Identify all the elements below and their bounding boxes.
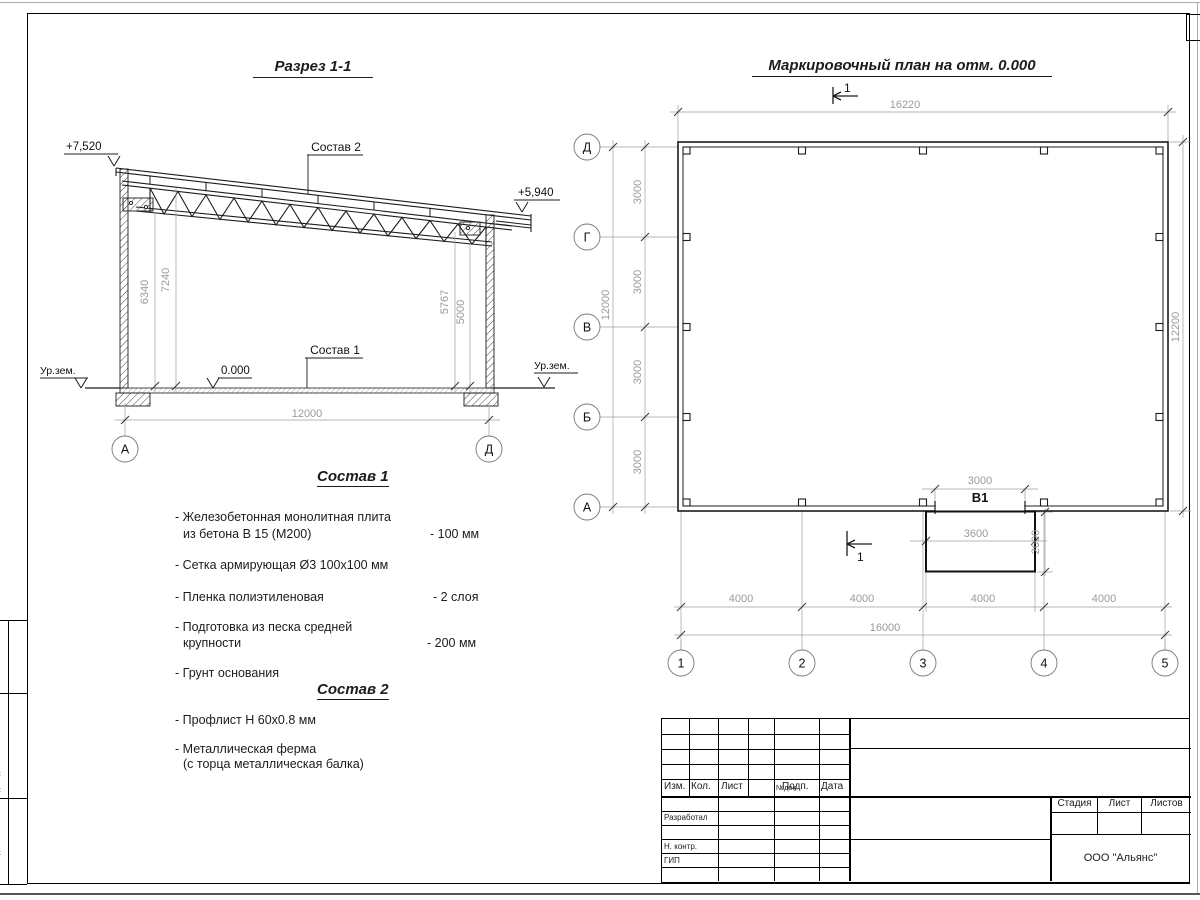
doc-number-box	[1186, 14, 1200, 41]
ground-left-text: Ур.зем.	[40, 365, 76, 377]
section-drawing-svg: 6340 7240 5767 5000 12000 А Д +7,520 +5,…	[20, 30, 620, 480]
tb-v818	[819, 719, 820, 881]
comp1-item4-line2: крупности	[183, 636, 241, 650]
side-stamp-divider	[8, 621, 9, 884]
level-zero-text: 0.000	[221, 365, 250, 377]
gate-label-b1: В1	[972, 490, 989, 505]
tb-role-developed: Разработал	[664, 813, 708, 822]
elev-left-text: +7,520	[66, 141, 102, 153]
tb-h748	[662, 749, 849, 750]
callout-floor-text: Состав 1	[310, 343, 360, 357]
dim-4000-2: 4000	[850, 593, 874, 605]
comp1-item5-line1: - Грунт основания	[175, 666, 279, 680]
comp2-heading: Состав 2	[317, 681, 389, 700]
dim-16220: 16220	[890, 99, 921, 111]
dim-3000-opening: 3000	[968, 475, 992, 487]
dim-6340: 6340	[139, 280, 151, 304]
comp1-item4-value: - 200 мм	[427, 636, 476, 650]
foundation-right	[464, 393, 498, 406]
dim-16000: 16000	[870, 622, 901, 634]
tb-sheets-label: Листов	[1142, 798, 1191, 809]
dim-5767: 5767	[439, 290, 451, 314]
tb-h778	[662, 779, 849, 780]
callout-roof-text: Состав 2	[311, 140, 361, 154]
foundation-left	[116, 393, 150, 406]
col-axis-3: 3	[920, 657, 927, 671]
side-stamp-label-inv: Инв. № подл.	[0, 846, 1, 887]
row-axis-g: Г	[584, 231, 591, 245]
tb-h763	[662, 764, 849, 765]
dim-4000-3: 4000	[971, 593, 995, 605]
col-axis-5: 5	[1162, 657, 1169, 671]
ground-and-slab	[85, 388, 555, 406]
dim-3000-left-1: 3000	[632, 180, 644, 204]
sheet-outer-top-edge	[0, 2, 1200, 3]
plan-building	[678, 142, 1168, 511]
tb-h833	[1050, 834, 1191, 835]
tb-h811	[1050, 812, 1191, 813]
tb-stage-label: Стадия	[1052, 798, 1097, 809]
plan-row-bubbles: Д Г В Б А	[574, 134, 600, 520]
dim-7240: 7240	[160, 268, 172, 292]
tb-h852	[662, 853, 849, 854]
tb-h733	[662, 734, 849, 735]
side-stamp: Взам. инв. № Подп. и дата Инв. № подл.	[0, 620, 27, 885]
comp2-item2-line2: (с торца металлическая балка)	[183, 757, 364, 771]
tb-col-kol: Кол.	[691, 781, 711, 792]
col-axis-2: 2	[799, 657, 806, 671]
axis-bubble-a: А	[121, 443, 130, 457]
tb-sheet-label: Лист	[1098, 798, 1141, 809]
plan-drawing-svg: 16220 12200 12000 3000 3000 3000 3000 40…	[560, 50, 1200, 695]
tb-h747R	[849, 748, 1191, 749]
title-block: Изм. Кол. Лист №док. Подп. Дата Разработ…	[661, 718, 1190, 883]
axis-bubble-d: Д	[485, 443, 494, 457]
side-stamp-cell-line-1	[0, 693, 27, 694]
tb-v848	[849, 719, 851, 881]
tb-h866	[662, 867, 849, 868]
tb-h810	[662, 811, 849, 812]
row-axis-d: Д	[583, 141, 592, 155]
plan-columns	[683, 147, 1163, 506]
tb-col-list: Лист	[721, 781, 743, 792]
ramp	[926, 512, 1035, 572]
dim-3000-left-2: 3000	[632, 270, 644, 294]
dim-3000-left-3: 3000	[632, 360, 644, 384]
elev-right-text: +5,940	[518, 187, 554, 199]
dim-3600: 3600	[964, 528, 988, 540]
tb-col-podp: Подп.	[782, 781, 809, 792]
tb-col-data: Дата	[821, 781, 843, 792]
side-stamp-cell-line-2	[0, 798, 27, 799]
dim-4000-1: 4000	[729, 593, 753, 605]
col-axis-1: 1	[678, 657, 685, 671]
plan-dim-ticks	[609, 108, 1187, 639]
tb-role-gip: ГИП	[664, 856, 680, 865]
comp1-item4-line1: - Подготовка из песка средней	[175, 620, 352, 634]
dim-4000-4: 4000	[1092, 593, 1116, 605]
dim-5000: 5000	[455, 300, 467, 324]
comp1-item2-line1: - Сетка армирующая Ø3 100х100 мм	[175, 558, 388, 572]
tb-v688	[689, 719, 690, 796]
tb-h795L	[662, 796, 849, 798]
row-axis-a: А	[583, 501, 592, 515]
tb-role-ncontr: Н. контр.	[664, 842, 697, 851]
comp1-item3-value: - 2 слоя	[433, 590, 478, 604]
comp2-item2-line1b: - Металлическая ферма	[175, 742, 316, 756]
dim-2000: 2000	[1030, 530, 1042, 554]
tb-h838M	[849, 839, 1050, 840]
section-axis-bubbles: А Д	[112, 426, 502, 462]
plan-col-bubbles: 1 2 3 4 5	[668, 612, 1178, 676]
comp1-item1-value: - 100 мм	[430, 527, 479, 541]
sheet-outer-bottom-edge	[0, 893, 1200, 895]
purlin-ticks	[150, 176, 430, 217]
comp2-item1-line1: - Профлист Н 60х0.8 мм	[175, 713, 316, 727]
comp1-item1-line2: из бетона В 15 (М200)	[183, 527, 311, 541]
tb-h824	[662, 825, 849, 826]
row-axis-v: В	[583, 321, 591, 335]
dim-12000-section: 12000	[292, 408, 323, 420]
right-wall	[486, 215, 494, 388]
side-stamp-label-podp: Подп. и дата	[0, 762, 1, 800]
dim-12000-plan: 12000	[600, 290, 612, 321]
comp1-heading: Состав 1	[317, 468, 389, 487]
tb-v747	[748, 719, 749, 796]
col-axis-4: 4	[1041, 657, 1048, 671]
tb-company: ООО "Альянс"	[1050, 852, 1191, 864]
plan-extension-lines	[600, 105, 1191, 650]
dim-12200: 12200	[1170, 312, 1182, 343]
comp1-item1-line1: - Железобетонная монолитная плита	[175, 510, 391, 524]
cut-mark-bottom-label: 1	[857, 550, 864, 564]
tb-v773	[774, 719, 775, 881]
tb-col-izm: Изм.	[664, 781, 685, 792]
row-axis-b: Б	[583, 411, 591, 425]
dim-3000-left-4: 3000	[632, 450, 644, 474]
tb-h838	[662, 839, 849, 840]
cut-mark-top-label: 1	[844, 81, 851, 95]
section-height-dims	[151, 188, 474, 392]
drawing-sheet: { "sheet": { "company": "ООО \"Альянс\""…	[0, 0, 1200, 900]
comp1-item3-line1: - Пленка полиэтиленовая	[175, 590, 324, 604]
side-stamp-label-vzam: Взам. инв. №	[0, 656, 1, 696]
tb-v717	[718, 719, 719, 881]
